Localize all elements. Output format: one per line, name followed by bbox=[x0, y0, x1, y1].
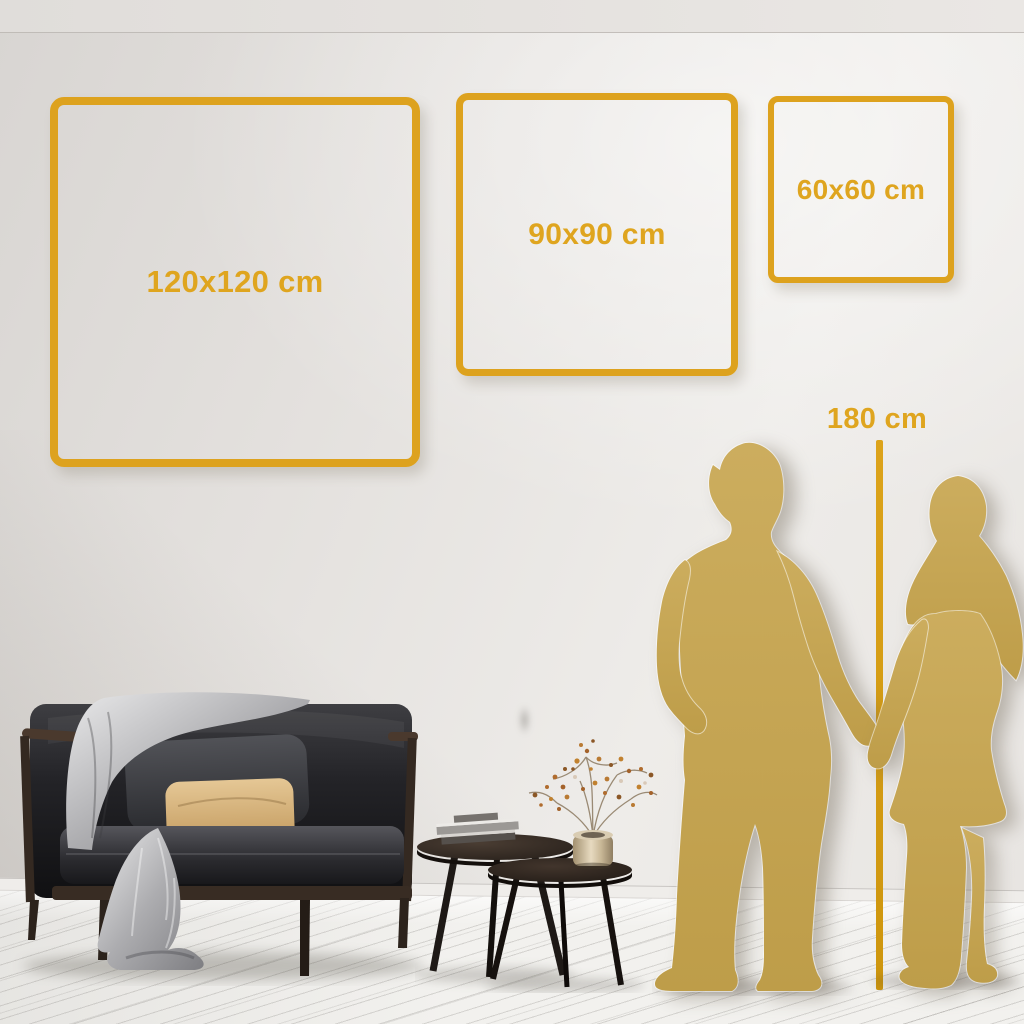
stack-of-books bbox=[436, 811, 520, 845]
size-guide-scene: 120x120 cm 90x90 cm 60x60 cm 180 cm bbox=[0, 0, 1024, 1024]
woman-silhouette bbox=[858, 468, 1024, 990]
dried-branch bbox=[529, 757, 657, 837]
size-label-120: 120x120 cm bbox=[146, 264, 323, 300]
coffee-table-tall bbox=[417, 811, 573, 977]
size-frame-90: 90x90 cm bbox=[456, 93, 738, 376]
size-frame-120: 120x120 cm bbox=[50, 97, 420, 467]
sofa-with-blanket-and-pillows bbox=[8, 688, 438, 986]
size-frame-60: 60x60 cm bbox=[768, 96, 954, 283]
ceiling-line bbox=[0, 0, 1024, 33]
size-label-60: 60x60 cm bbox=[797, 174, 926, 206]
size-label-90: 90x90 cm bbox=[528, 218, 666, 252]
gold-vase bbox=[573, 830, 613, 869]
branch-berries bbox=[533, 739, 654, 811]
height-ruler-label: 180 cm bbox=[797, 403, 957, 436]
man-silhouette bbox=[652, 436, 884, 996]
nesting-coffee-tables bbox=[415, 725, 660, 993]
